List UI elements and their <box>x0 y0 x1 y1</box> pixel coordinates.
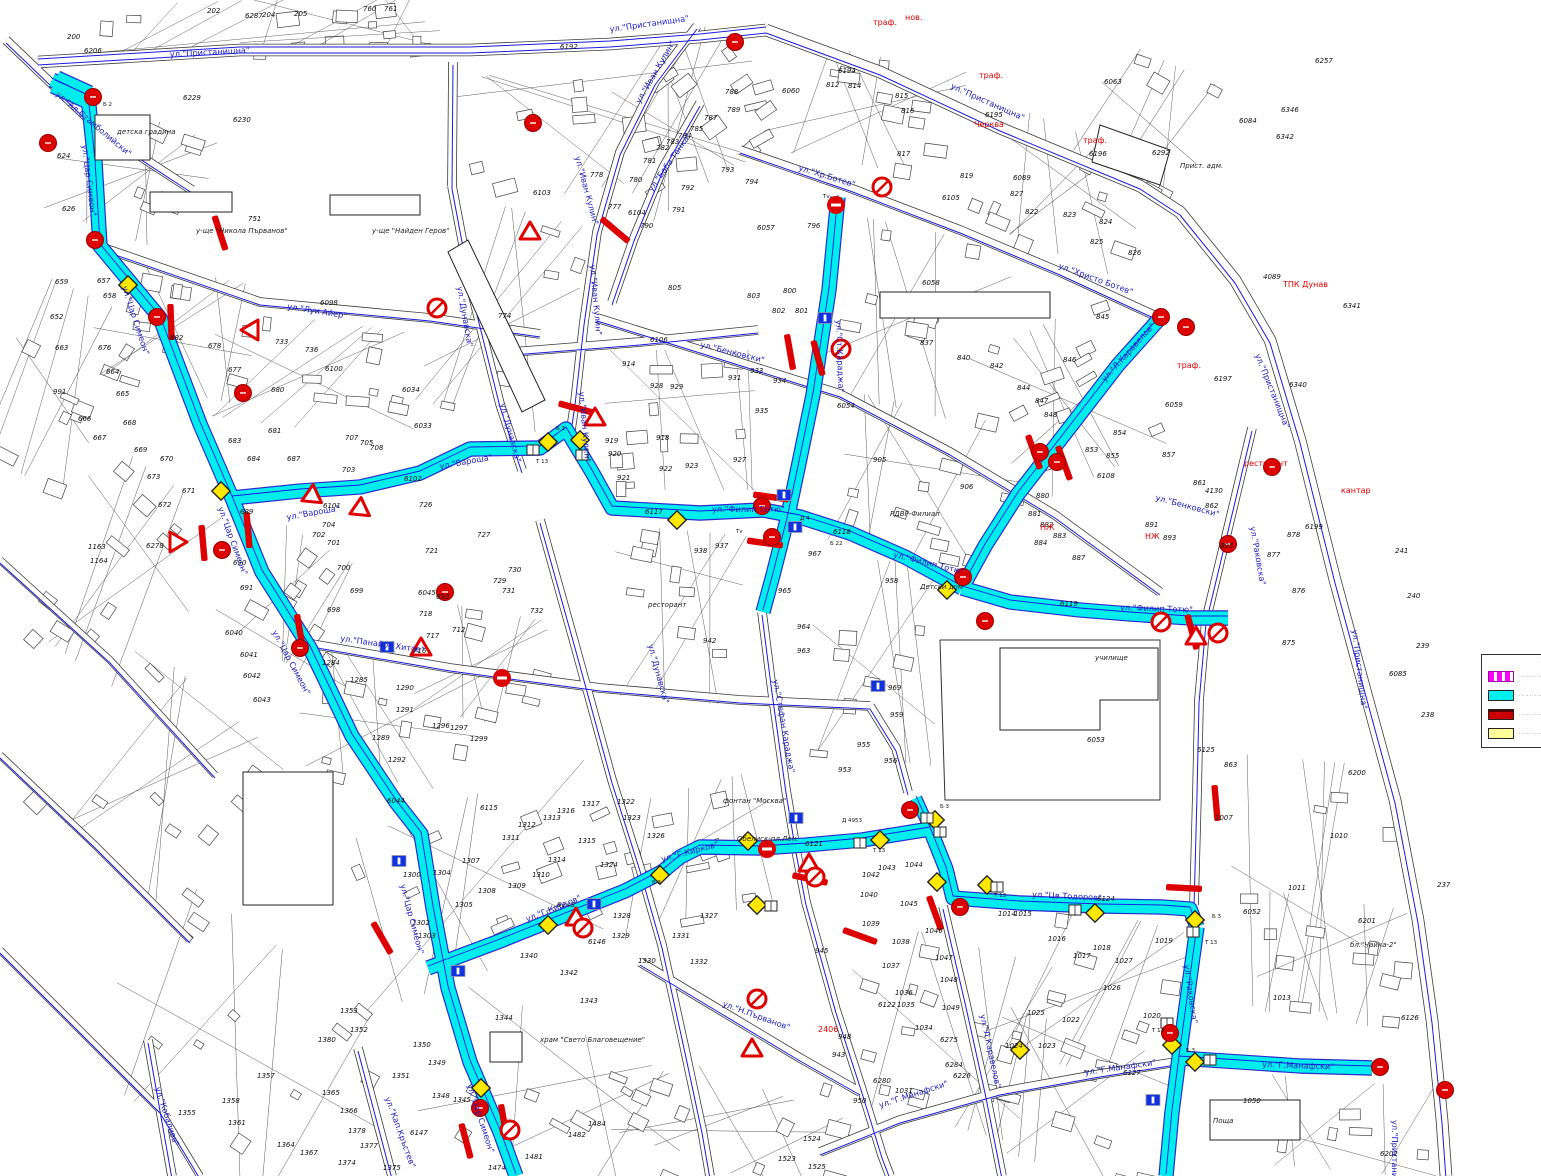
parcel-number: 1377 <box>360 1142 378 1150</box>
red-bar-symbol <box>370 921 394 955</box>
facility-label-red: кантар <box>1341 486 1371 495</box>
parcel-number: 6043 <box>253 696 271 704</box>
parcel-number: 793 <box>721 166 734 174</box>
parcel-number: 6342 <box>1276 133 1294 141</box>
parcel-number: 6275 <box>940 1036 958 1044</box>
parcel-number: 6115 <box>480 804 498 812</box>
parcel-number: 6044 <box>387 797 405 805</box>
parcel-number: 1285 <box>350 676 368 684</box>
parcel-number: 6105 <box>942 194 960 202</box>
parcel-number: 6045 <box>418 589 436 597</box>
parcel-number: 943 <box>832 1051 845 1059</box>
parcel-number: 6126 <box>1401 1014 1419 1022</box>
parcel-number: 1361 <box>228 1119 246 1127</box>
parcel-number: 1019 <box>1155 937 1173 945</box>
parcel-number: 959 <box>890 711 904 719</box>
parcel-number: 942 <box>703 637 717 645</box>
parcel-number: 1340 <box>520 952 538 960</box>
parcel-number: 1353 <box>340 1007 358 1015</box>
parcel-number: 1048 <box>940 976 958 984</box>
parcel-number: 1040 <box>860 891 878 899</box>
street-name-label: ул."Ст.Караджа" <box>834 320 847 393</box>
red-bar-symbol <box>599 216 631 244</box>
place-label: фонтан "Москва" <box>723 797 786 805</box>
parcel-number: 652 <box>50 313 64 321</box>
parcel-number: 854 <box>1113 429 1126 437</box>
legend-title: ········ <box>1488 659 1541 667</box>
parcel-number: 891 <box>1145 521 1158 529</box>
parcel-number: 923 <box>685 462 698 470</box>
street-name-label: ул."Раковска" <box>1248 526 1268 586</box>
yield-sign-triangle <box>742 1039 762 1056</box>
parcel-number: 6340 <box>1289 381 1307 389</box>
parcel-number: 6257 <box>1315 57 1333 65</box>
parcel-number: 726 <box>419 501 433 509</box>
parcel-number: 6052 <box>1243 908 1261 916</box>
parcel-number: 1045 <box>900 900 918 908</box>
parcel-number: 1025 <box>1027 1009 1045 1017</box>
parcel-number: 1300 <box>403 871 421 879</box>
parcel-number: 6108 <box>1097 472 1115 480</box>
parcel-number: 788 <box>725 88 739 96</box>
street-name-label: ул."Пристанищна" <box>170 45 250 59</box>
parcel-number: 877 <box>1267 551 1281 559</box>
parcel-number: 883 <box>1053 532 1066 540</box>
parcel-number: 6197 <box>1214 375 1232 383</box>
street-name-label: ул."Пристанищна" <box>609 13 690 34</box>
parcel-number: 6118 <box>833 528 851 536</box>
parcel-number: 671 <box>182 487 195 495</box>
parcel-number: 1322 <box>617 798 635 806</box>
parcel-number: 928 <box>650 382 664 390</box>
parcel-number: 6278 <box>146 542 164 550</box>
parcel-number: 6103 <box>533 189 551 197</box>
parcel-number: 626 <box>62 205 76 213</box>
facility-label-red: траф. <box>873 18 897 27</box>
place-label: Обелиск-пл.Лен. <box>737 835 798 843</box>
parcel-number: 863 <box>1224 761 1237 769</box>
parcel-number: 1331 <box>672 932 690 940</box>
parcel-number: 681 <box>268 427 281 435</box>
parcel-number: 956 <box>884 757 898 765</box>
parcel-number: 6341 <box>1343 302 1361 310</box>
parcel-number: 669 <box>134 446 148 454</box>
parcel-number: 205 <box>294 10 308 18</box>
parcel-number: 736 <box>305 346 319 354</box>
parcel-number: 822 <box>1025 208 1039 216</box>
parcel-number: 761 <box>384 5 397 13</box>
parcel-number: 1289 <box>372 734 390 742</box>
parcel-number: 1316 <box>557 807 575 815</box>
parcel-number: 931 <box>728 374 741 382</box>
place-label: РДВР-Филиал <box>890 510 940 518</box>
parcel-number: 1378 <box>348 1127 366 1135</box>
parcel-number: 1017 <box>1073 952 1091 960</box>
parcel-number: 1365 <box>322 1089 340 1097</box>
legend-cyan-swatch <box>1488 690 1514 701</box>
parcel-number: 1015 <box>1014 910 1032 918</box>
parcel-number: 803 <box>747 292 760 300</box>
parcel-number: 729 <box>493 577 507 585</box>
parcel-number: 712 <box>452 626 466 634</box>
parcel-number: 826 <box>1128 249 1142 257</box>
parcel-number: 934 <box>773 377 786 385</box>
legend-item: ········· <box>1488 667 1541 686</box>
parcel-number: 6104 <box>628 209 646 217</box>
parcel-number: 689 <box>240 508 254 516</box>
yield-sign-triangle <box>346 498 370 523</box>
parcel-number: 667 <box>93 434 107 442</box>
facility-label-red: НЖ <box>1145 532 1160 541</box>
parcel-number: 837 <box>920 339 934 347</box>
parcel-number: 816 <box>901 107 915 115</box>
place-label: бл."Чайка-2" <box>1350 941 1397 949</box>
parcel-number: 969 <box>888 684 902 692</box>
parcel-number: 921 <box>617 474 630 482</box>
parcel-number: 1348 <box>432 1092 450 1100</box>
place-label: Поща <box>1213 1117 1233 1125</box>
parcel-number: 814 <box>848 82 861 90</box>
parcel-number: 6229 <box>183 94 201 102</box>
sign-code-label: Т 13 <box>1204 940 1218 946</box>
parcel-number: 842 <box>990 362 1004 370</box>
facility-label-red: траф. <box>1177 361 1201 370</box>
parcel-number: 672 <box>158 501 172 509</box>
parcel-number: 1038 <box>892 938 910 946</box>
parcel-number: 780 <box>629 176 643 184</box>
parcel-number: 1523 <box>778 1155 796 1163</box>
parcel-number: 929 <box>670 383 684 391</box>
sign-code-label: Д 4 <box>800 516 810 522</box>
parcel-number: 1374 <box>338 1159 356 1167</box>
street-labels: ул."Ал.Стамболийски"ул."Пристанищна"ул."… <box>54 13 1400 1176</box>
parcel-number: 1013 <box>1273 994 1291 1002</box>
parcel-number: 965 <box>778 587 792 595</box>
parcel-number: 670 <box>160 455 174 463</box>
parcel-number: 6054 <box>837 402 855 410</box>
parcel-number: 1007 <box>1215 814 1233 822</box>
red-bar-symbol <box>784 334 797 371</box>
parcel-number: 785 <box>690 125 704 133</box>
parcel-number: 1329 <box>612 932 630 940</box>
parcel-number: 658 <box>103 292 117 300</box>
parcel-number: 905 <box>873 456 887 464</box>
parcel-number: 730 <box>508 566 522 574</box>
parcel-number: 790 <box>640 222 654 230</box>
parcel-number: 666 <box>78 415 92 423</box>
parcel-number: 1367 <box>300 1149 318 1157</box>
parcel-number: 777 <box>608 203 622 211</box>
parcel-number: 955 <box>857 741 871 749</box>
parcel-number: 4130 <box>1205 487 1223 495</box>
parcel-number: 237 <box>1437 881 1451 889</box>
yield-sign-triangle <box>520 222 540 239</box>
parcel-number: 881 <box>1028 510 1041 518</box>
parcel-texture <box>0 0 1444 1176</box>
legend-item: ········· <box>1488 686 1541 705</box>
parcel-number: 857 <box>1162 451 1176 459</box>
parcel-number: 6060 <box>782 87 800 95</box>
parcel-number: 1047 <box>935 954 953 962</box>
facility-label-red: траф. <box>979 71 1003 80</box>
facility-label-red: Черква <box>974 120 1004 129</box>
parcel-number: 1357 <box>257 1072 275 1080</box>
parcel-number: 819 <box>960 172 974 180</box>
sign-code-label: Т 13 <box>872 848 886 854</box>
parcel-number: 6199 <box>1305 523 1323 531</box>
place-label: детска градина <box>116 128 175 136</box>
parcel-number: 6085 <box>1389 670 1407 678</box>
parcel-number: 1297 <box>450 724 468 732</box>
parcel-number: 1313 <box>543 814 561 822</box>
parcel-number: 1366 <box>340 1107 358 1115</box>
parcel-number: 6084 <box>1239 117 1257 125</box>
parcel-number: 1330 <box>638 957 656 965</box>
parcel-number: 1299 <box>470 735 488 743</box>
parcel-number: 1525 <box>808 1163 826 1171</box>
sign-code-label: Д 4953 <box>842 818 863 824</box>
city-map-canvas[interactable]: 2006206204205202628776076161926229623075… <box>0 0 1541 1176</box>
parcel-number: 876 <box>1292 587 1306 595</box>
street-name-label: ул."Иван Кулин" <box>573 155 601 226</box>
parcel-number: 202 <box>207 7 221 15</box>
parcel-number: 847 <box>1035 397 1049 405</box>
parcel-number: 1018 <box>1093 944 1111 952</box>
parcel-number: 861 <box>1193 479 1206 487</box>
parcel-number: 1345 <box>453 1096 471 1104</box>
parcel-number: 1016 <box>1048 935 1066 943</box>
parcel-number: 1327 <box>700 912 718 920</box>
sign-code-label: Т 13 <box>535 459 549 465</box>
facility-label-red: ресторант <box>1244 459 1288 468</box>
parcel-number: 782 <box>656 144 670 152</box>
parcel-number: 914 <box>622 360 635 368</box>
parcel-number: 801 <box>795 307 808 315</box>
sign-code-label: Б 3 <box>940 804 950 810</box>
parcel-number: 683 <box>228 437 241 445</box>
parcel-number: 682 <box>170 334 184 342</box>
legend-yellow-swatch <box>1488 728 1514 739</box>
street-name-label: ул."Вароша" <box>286 503 341 522</box>
parcel-number: 680 <box>271 386 285 394</box>
parcel-number: 718 <box>419 610 433 618</box>
parcel-number: 1292 <box>388 756 406 764</box>
parcel-number: 1049 <box>942 1004 960 1012</box>
map-legend: ········ ········· ········· ········· ·… <box>1481 654 1541 748</box>
facility-label-red: нов. <box>905 13 922 22</box>
parcel-number: 938 <box>694 547 708 555</box>
parcel-number: 1326 <box>647 832 665 840</box>
parcel-number: 703 <box>342 466 355 474</box>
parcel-number: 6292 <box>1152 149 1170 157</box>
parcel-number: 1284 <box>322 659 340 667</box>
sign-code-label: Тv <box>735 529 743 535</box>
parcel-number: 1524 <box>803 1135 821 1143</box>
parcel-number: 1034 <box>915 1024 933 1032</box>
yield-sign-triangle <box>170 532 187 552</box>
parcel-number: 6058 <box>922 279 940 287</box>
parcel-number: 6201 <box>1358 917 1376 925</box>
parcel-number: 6100 <box>325 365 343 373</box>
parcel-number: 853 <box>1085 446 1098 454</box>
parcel-number: 875 <box>1282 639 1296 647</box>
parcel-number: 1484 <box>588 1120 606 1128</box>
parcel-number: 823 <box>1063 211 1076 219</box>
parcel-number: 800 <box>783 287 797 295</box>
place-label: храм "Свето Благовещение" <box>539 1036 645 1044</box>
parcel-number: 922 <box>659 465 673 473</box>
place-label: училище <box>1094 654 1128 662</box>
parcel-number: 657 <box>97 277 111 285</box>
parcel-number: 778 <box>590 171 604 179</box>
parcel-number: 1290 <box>396 684 414 692</box>
parcel-number: 663 <box>55 344 68 352</box>
parcel-number: 6057 <box>757 224 775 232</box>
facility-label-red: траф. <box>1083 136 1107 145</box>
street-name-label: ул."Филип Тотю" <box>712 504 785 514</box>
place-label: у-ще "Никола Първанов" <box>195 227 288 235</box>
parcel-number: 624 <box>57 152 70 160</box>
parcel-number: 684 <box>247 455 260 463</box>
parcel-number: 840 <box>957 354 971 362</box>
parcel-number: 1482 <box>568 1131 586 1139</box>
parcel-number: 792 <box>681 184 695 192</box>
parcel-number: 6226 <box>953 1072 971 1080</box>
parcel-number: 1332 <box>690 958 708 966</box>
parcel-number: 945 <box>815 947 829 955</box>
sign-code-label: Б 2 <box>103 102 112 108</box>
parcel-number: 1481 <box>525 1153 543 1161</box>
highlighted-route-network <box>52 78 1372 1176</box>
parcel-number: 937 <box>715 542 729 550</box>
parcel-number: 6106 <box>650 336 668 344</box>
parcel-number: 802 <box>772 307 786 315</box>
parcel-number: 893 <box>1163 534 1176 542</box>
parcel-number: 668 <box>123 419 137 427</box>
parcel-number: 4089 <box>1263 273 1281 281</box>
parcel-number: 1474 <box>488 1164 506 1172</box>
red-bar-symbol <box>842 927 878 945</box>
parcel-number: 958 <box>885 577 899 585</box>
parcel-number: 702 <box>312 531 326 539</box>
parcel-number: 6346 <box>1281 106 1299 114</box>
parcel-number: 691 <box>240 584 253 592</box>
parcel-number: 241 <box>1395 547 1408 555</box>
parcel-number: 700 <box>337 564 351 572</box>
parcel-number: 815 <box>895 92 909 100</box>
parcel-number: 827 <box>1010 190 1024 198</box>
parcel-number: 1352 <box>350 1026 368 1034</box>
parcel-number: 1343 <box>580 997 598 1005</box>
parcel-number: 240 <box>1407 592 1421 600</box>
parcel-number: 991 <box>53 388 66 396</box>
parcel-number: 880 <box>1036 492 1050 500</box>
parcel-number: 678 <box>208 342 222 350</box>
parcel-number: 812 <box>826 81 840 89</box>
sign-code-label: Т 13 <box>993 893 1007 899</box>
place-label: у-ще "Найден Геров" <box>371 227 449 235</box>
parcel-number: 1380 <box>318 1036 336 1044</box>
parcel-number: 1044 <box>905 861 923 869</box>
place-label: ресторант <box>647 601 687 609</box>
parcel-number: 6192 <box>560 43 578 51</box>
parcel-number: 1358 <box>222 1097 240 1105</box>
parcel-number: 796 <box>807 222 821 230</box>
parcel-number: 1314 <box>548 856 566 864</box>
street-name-label: ул."Л.Каравелов" <box>1099 321 1157 383</box>
parcel-number: 1050 <box>1243 1097 1261 1105</box>
parcel-number: 794 <box>745 178 758 186</box>
sign-code-label: Б 3 <box>652 880 662 886</box>
parcel-number: 1344 <box>495 1014 513 1022</box>
parcel-number: 848 <box>1044 411 1058 419</box>
facility-label-red: НЖ <box>1040 523 1055 532</box>
parcel-number: 774 <box>498 312 511 320</box>
parcel-number: 1349 <box>428 1059 446 1067</box>
red-bar-symbol <box>198 525 208 561</box>
parcel-number: 6063 <box>1104 78 1122 86</box>
parcel-number: 704 <box>322 521 335 529</box>
sign-code-label: Б 3 <box>556 426 566 432</box>
parcel-number: 677 <box>228 366 242 374</box>
parcel-number: 950 <box>853 1097 867 1105</box>
parcel-number: 6034 <box>402 386 420 394</box>
parcel-number: 1011 <box>1288 884 1306 892</box>
parcel-number: 708 <box>370 444 384 452</box>
parcel-number: 1305 <box>455 901 473 909</box>
parcel-number: 1312 <box>518 821 536 829</box>
parcel-number: 733 <box>275 338 288 346</box>
parcel-number: 846 <box>1063 356 1077 364</box>
parcel-number: 1351 <box>392 1072 410 1080</box>
street-name-label: ул."Пристанищна" <box>1390 1120 1400 1176</box>
parcel-number: 760 <box>363 5 377 13</box>
parcel-number: 884 <box>1034 539 1047 547</box>
parcel-number: 1010 <box>1330 832 1348 840</box>
parcel-number: 791 <box>672 206 685 214</box>
parcel-number: 751 <box>248 215 261 223</box>
parcel-number: 1315 <box>578 837 596 845</box>
parcel-number: 6033 <box>414 422 432 430</box>
parcel-number: 200 <box>67 33 81 41</box>
parcel-number: 1317 <box>582 800 600 808</box>
gis-map-viewport[interactable]: 2006206204205202628776076161926229623075… <box>0 0 1541 1176</box>
parcel-number: 919 <box>605 437 619 445</box>
parcel-number: 1296 <box>432 722 450 730</box>
parcel-number: 1027 <box>1115 957 1133 965</box>
parcel-number: 1026 <box>1103 984 1121 992</box>
parcel-number: 1024 <box>1005 1042 1023 1050</box>
parcel-number: 1310 <box>532 871 550 879</box>
parcel-number: 1039 <box>862 920 880 928</box>
parcel-number: 6287 <box>245 12 263 20</box>
parcel-number: 953 <box>838 766 851 774</box>
parcel-number: 948 <box>838 1033 852 1041</box>
sign-code-label: Т 13 <box>1151 1028 1165 1034</box>
parcel-number: 805 <box>668 284 682 292</box>
parcel-number: 6196 <box>1089 150 1107 158</box>
parcel-number: 1036 <box>895 989 913 997</box>
parcel-number: 6040 <box>225 629 243 637</box>
parcel-number: 731 <box>502 587 515 595</box>
parcel-number: 1375 <box>383 1164 401 1172</box>
parcel-number: 1307 <box>462 857 480 865</box>
parcel-number: 204 <box>262 11 275 19</box>
parcel-number: 6125 <box>1197 746 1215 754</box>
parcel-number: 6147 <box>410 1129 428 1137</box>
parcel-number: 887 <box>1072 554 1086 562</box>
parcel-number: 6119 <box>1060 600 1078 608</box>
